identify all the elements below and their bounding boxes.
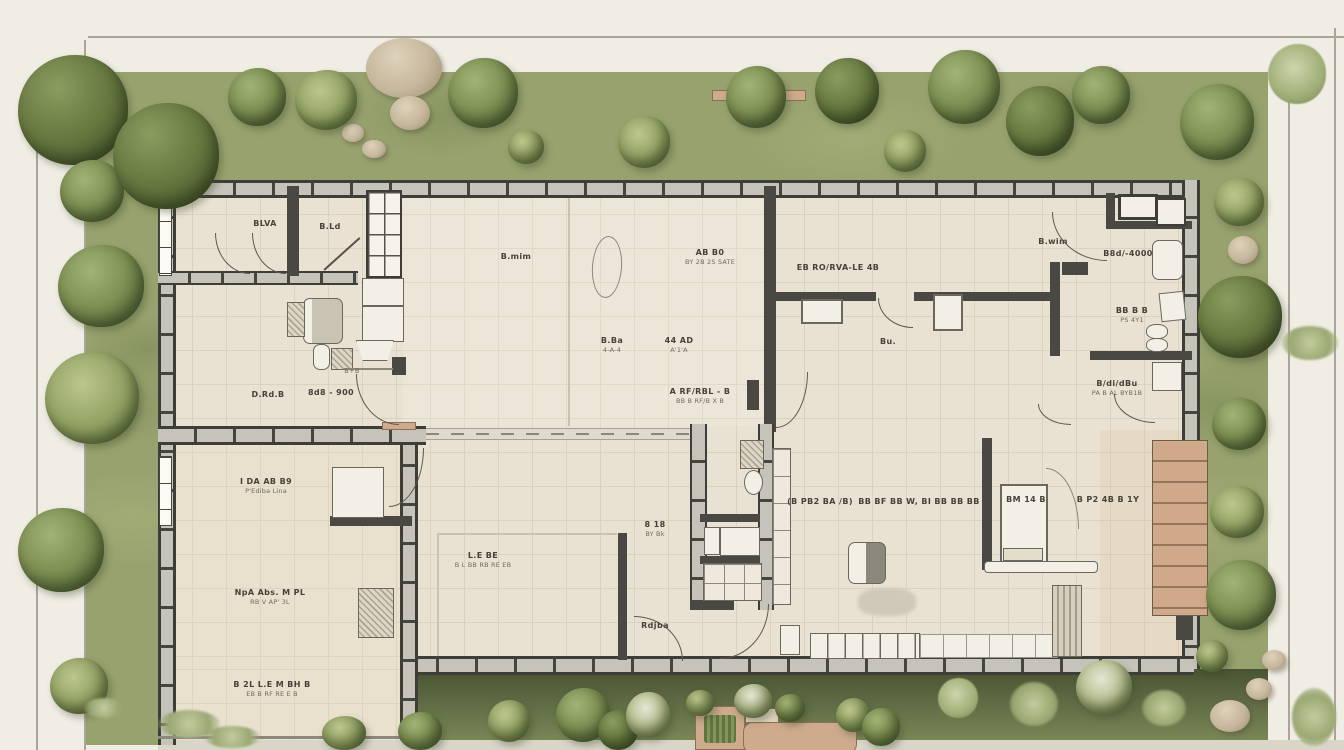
tree-icon [18, 55, 128, 165]
bush-icon [938, 678, 978, 718]
wall-stub-left [392, 357, 406, 375]
closet-strip [772, 448, 791, 605]
site-boundary-right-inner [1288, 100, 1290, 750]
dim-label: B.Ba4-A-4 [601, 336, 623, 355]
toilet [1146, 324, 1168, 339]
tree-icon [884, 130, 926, 172]
exterior-wood-stairs [1152, 440, 1208, 616]
wall-center-right-divider [764, 186, 776, 432]
wall-room-a-bottom [158, 271, 358, 285]
room-label: BB B BPS 4Y1 [1116, 306, 1148, 325]
room-label: B.Ld [319, 222, 341, 232]
room-label: L.E BEB L BB RB RE EB [455, 551, 512, 570]
closet-hatched [358, 588, 394, 638]
bush-icon [686, 690, 714, 716]
dim-label: 8 18BY Bk [644, 520, 665, 539]
small-cabinet [780, 625, 800, 655]
plant-texture [858, 588, 916, 616]
room-label: BM 14 B [1006, 495, 1046, 505]
dim-label: 8d8 - 900 [308, 388, 354, 398]
tree-icon [1198, 276, 1282, 358]
faint-divider [568, 196, 570, 426]
tree-icon [18, 508, 104, 592]
tree-icon [1196, 640, 1228, 672]
shower-corner [740, 440, 764, 469]
room-label: D.Rd.B [251, 390, 284, 400]
wardrobe-block [1062, 262, 1088, 275]
room-label: B.wim [1038, 237, 1068, 247]
room-label: (B PB2 BA /B) [787, 497, 853, 507]
wall-a-b-divider [287, 186, 299, 276]
bush-icon [322, 716, 366, 750]
cabinet-under-glaze-1 [362, 278, 404, 306]
bush-icon [626, 692, 670, 738]
grass-tuft [1142, 690, 1186, 726]
bidet [1146, 338, 1168, 352]
side-table [313, 344, 330, 370]
bench [984, 561, 1098, 573]
kitchen-counter-2 [1159, 291, 1187, 322]
shower-tray [703, 563, 762, 601]
wall-kitchen-vertical [1050, 262, 1060, 356]
tree-icon [508, 130, 544, 164]
room-label: Rdjba [641, 621, 669, 631]
coffee-table [848, 542, 886, 584]
tree-icon [928, 50, 1000, 124]
room-label: AB B0BY 2B 2S SATE [685, 248, 735, 267]
tree-icon [295, 70, 357, 130]
kitchen-counter-1 [1152, 240, 1183, 280]
corner-skylight-box [1118, 194, 1158, 220]
grass-tuft [1010, 682, 1058, 726]
grass-tuft [1292, 688, 1336, 746]
wall-partition-bottom-center [618, 533, 627, 660]
fridge [933, 294, 963, 331]
faint-outline [437, 533, 617, 535]
rock-icon [362, 140, 386, 158]
rock-icon [342, 124, 364, 142]
cabinet-under-glaze-2 [362, 306, 404, 342]
tv-console [801, 299, 843, 324]
grass-tuft [84, 698, 124, 718]
wall-kitchen-horizontal [1090, 351, 1192, 360]
tree-icon [58, 245, 144, 327]
tree-icon [1214, 178, 1264, 226]
wall-bath-mid-1 [700, 514, 760, 522]
faint-outline [437, 533, 439, 657]
sideboard-row [810, 633, 920, 659]
room-label: B 2L L.E M BH BEB B RF RE E B [233, 680, 310, 699]
room-label: NpA Abs. M PLRB V AP' 3L [235, 588, 306, 607]
wall-exterior-top [158, 180, 1194, 198]
glazed-partition [366, 190, 402, 278]
ottoman [287, 302, 305, 337]
rock-icon [1246, 678, 1272, 700]
tree-icon [1212, 398, 1266, 450]
radiator-left [159, 456, 172, 526]
bush-icon [734, 684, 772, 718]
wall-bed-nook [982, 438, 992, 570]
tree-icon [45, 352, 139, 444]
service-box [1176, 616, 1193, 640]
tree-icon [1268, 44, 1326, 104]
site-boundary-left-outer [36, 140, 38, 750]
corner-vent-box [1156, 198, 1186, 226]
room-label: B/di/dBuPA B AL BYB1B [1092, 379, 1142, 398]
room-label: B P2 4B B 1Y [1077, 495, 1140, 505]
bath-shelf [720, 527, 760, 556]
tree-icon [228, 68, 286, 126]
grass-tuft [1282, 326, 1338, 360]
tree-icon [1210, 486, 1264, 538]
tree-icon [448, 58, 518, 128]
bush-icon [398, 712, 442, 750]
bush-icon [775, 694, 805, 722]
bath-box [1152, 362, 1182, 391]
washer [704, 527, 720, 555]
tree-icon [815, 58, 879, 124]
dim-label: B+B [344, 367, 360, 375]
rock-icon [366, 38, 442, 98]
tree-icon [1006, 86, 1074, 156]
tree-icon [1072, 66, 1130, 124]
room-label: BB BF BB W, BI BB BB BB [858, 497, 980, 507]
tree-icon [1180, 84, 1254, 160]
room-label: B.mim [501, 252, 532, 262]
tree-icon [618, 116, 670, 168]
wardrobe-striped [1052, 585, 1082, 657]
wall-exterior-bottom [400, 656, 1194, 675]
rock-icon [1262, 650, 1286, 670]
bed-pillow-band [1003, 548, 1043, 561]
site-boundary-top [88, 36, 1344, 38]
room-label: I DA AB B9P'Ediba Lina [240, 477, 292, 496]
dim-label: 44 ADA'1'A [665, 336, 694, 355]
dim-label: B8d/-4000 [1103, 249, 1153, 259]
sliding-glass-wall [426, 428, 690, 440]
grass-tuft [204, 726, 260, 748]
floor-plan-scene: BLVA B.Ld B.mim B.wim AB B0BY 2B 2S SATE… [0, 0, 1344, 750]
rock-icon [390, 96, 430, 130]
building-floor [158, 180, 1194, 669]
bath-sink [744, 470, 763, 495]
cabinet-row-light [920, 634, 1058, 658]
site-boundary-right-outer [1334, 28, 1336, 750]
rock-icon [1228, 236, 1258, 264]
room-label: Bu. [880, 337, 896, 347]
bush-icon [488, 700, 530, 742]
room-label: BLVA [253, 219, 277, 229]
room-label: EB RO/RVA-LE 4B [797, 263, 880, 273]
door-hinge-panel [747, 380, 759, 410]
bush-icon [1076, 660, 1132, 714]
planter-plants [704, 715, 736, 743]
room-label: A RF/RBL - BBB B RF/B X B [670, 387, 731, 406]
armchair [303, 298, 343, 344]
rock-icon [1210, 700, 1250, 732]
tree-icon [1206, 560, 1276, 630]
tree-icon [726, 66, 786, 128]
square-table [332, 467, 384, 518]
tree-icon [113, 103, 219, 209]
bush-icon [862, 708, 900, 746]
